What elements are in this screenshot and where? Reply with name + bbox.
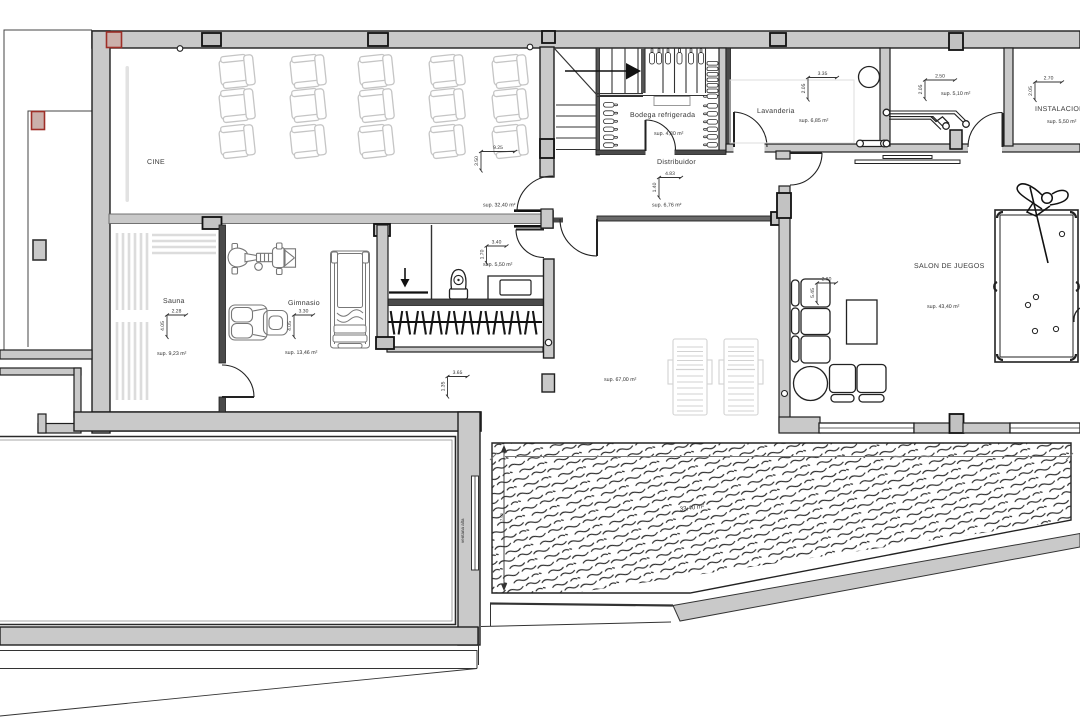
svg-text:sup. 9,23 m²: sup. 9,23 m² bbox=[157, 351, 187, 357]
svg-text:2.70: 2.70 bbox=[1044, 76, 1054, 82]
svg-text:sup. 13,46 m²: sup. 13,46 m² bbox=[285, 350, 318, 356]
svg-text:sup. 6,85 m²: sup. 6,85 m² bbox=[799, 118, 829, 124]
svg-text:ventana alta: ventana alta bbox=[460, 518, 465, 543]
svg-text:sup. 6,76 m²: sup. 6,76 m² bbox=[652, 203, 682, 209]
svg-text:1.40: 1.40 bbox=[652, 182, 658, 192]
svg-text:sup. 32,40 m²: sup. 32,40 m² bbox=[483, 203, 516, 209]
svg-text:4.05: 4.05 bbox=[160, 321, 166, 331]
svg-text:2.05: 2.05 bbox=[918, 84, 924, 94]
svg-text:2.60: 2.60 bbox=[822, 277, 832, 283]
svg-text:7.00: 7.00 bbox=[499, 512, 504, 521]
svg-text:Sauna: Sauna bbox=[163, 298, 185, 305]
svg-text:3.40: 3.40 bbox=[492, 240, 502, 246]
svg-text:5.45: 5.45 bbox=[810, 288, 816, 298]
svg-text:sup. 5,50 m²: sup. 5,50 m² bbox=[1047, 119, 1077, 125]
svg-text:Lavanderia: Lavanderia bbox=[757, 107, 795, 115]
svg-text:2.50: 2.50 bbox=[935, 74, 945, 80]
svg-text:4.05: 4.05 bbox=[287, 321, 293, 331]
svg-text:sup. 67,00 m²: sup. 67,00 m² bbox=[604, 377, 637, 383]
svg-text:SALON DE JUEGOS: SALON DE JUEGOS bbox=[914, 263, 985, 270]
svg-text:3.35: 3.35 bbox=[818, 71, 828, 77]
svg-text:INSTALACIONES: INSTALACIONES bbox=[1035, 106, 1080, 113]
svg-text:sup. 4,80 m²: sup. 4,80 m² bbox=[654, 131, 684, 137]
svg-text:Bodega refrigerada: Bodega refrigerada bbox=[630, 111, 695, 119]
svg-text:2.05: 2.05 bbox=[801, 83, 807, 93]
svg-text:1.35: 1.35 bbox=[441, 381, 447, 391]
svg-text:3.50: 3.50 bbox=[474, 156, 480, 166]
svg-text:9.25: 9.25 bbox=[493, 145, 503, 151]
svg-text:3.65: 3.65 bbox=[453, 370, 463, 376]
svg-text:sup. 5,10 m²: sup. 5,10 m² bbox=[941, 91, 971, 97]
svg-text:CINE: CINE bbox=[147, 159, 165, 166]
svg-text:1.70: 1.70 bbox=[480, 249, 486, 259]
svg-text:Gimnasio: Gimnasio bbox=[288, 299, 320, 307]
svg-text:sup. 43,40 m²: sup. 43,40 m² bbox=[927, 304, 960, 310]
svg-text:2.05: 2.05 bbox=[1028, 86, 1034, 96]
svg-text:3.30: 3.30 bbox=[299, 309, 309, 315]
svg-text:2.28: 2.28 bbox=[172, 309, 182, 315]
svg-text:4.83: 4.83 bbox=[665, 171, 675, 177]
svg-text:Distribuidor: Distribuidor bbox=[657, 158, 696, 166]
